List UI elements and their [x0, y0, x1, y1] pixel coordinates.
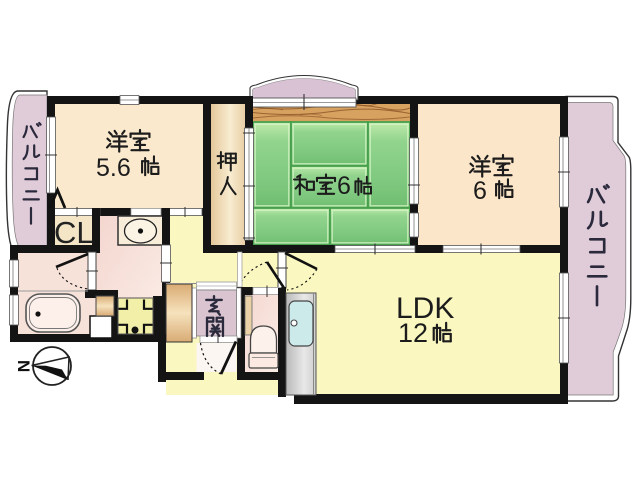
svg-text:12: 12	[398, 318, 428, 348]
svg-text:5.6: 5.6	[96, 154, 131, 182]
svg-text:6: 6	[473, 177, 487, 205]
svg-text:6: 6	[337, 172, 351, 200]
svg-text:N: N	[14, 360, 33, 372]
svg-text:CL: CL	[54, 215, 94, 250]
